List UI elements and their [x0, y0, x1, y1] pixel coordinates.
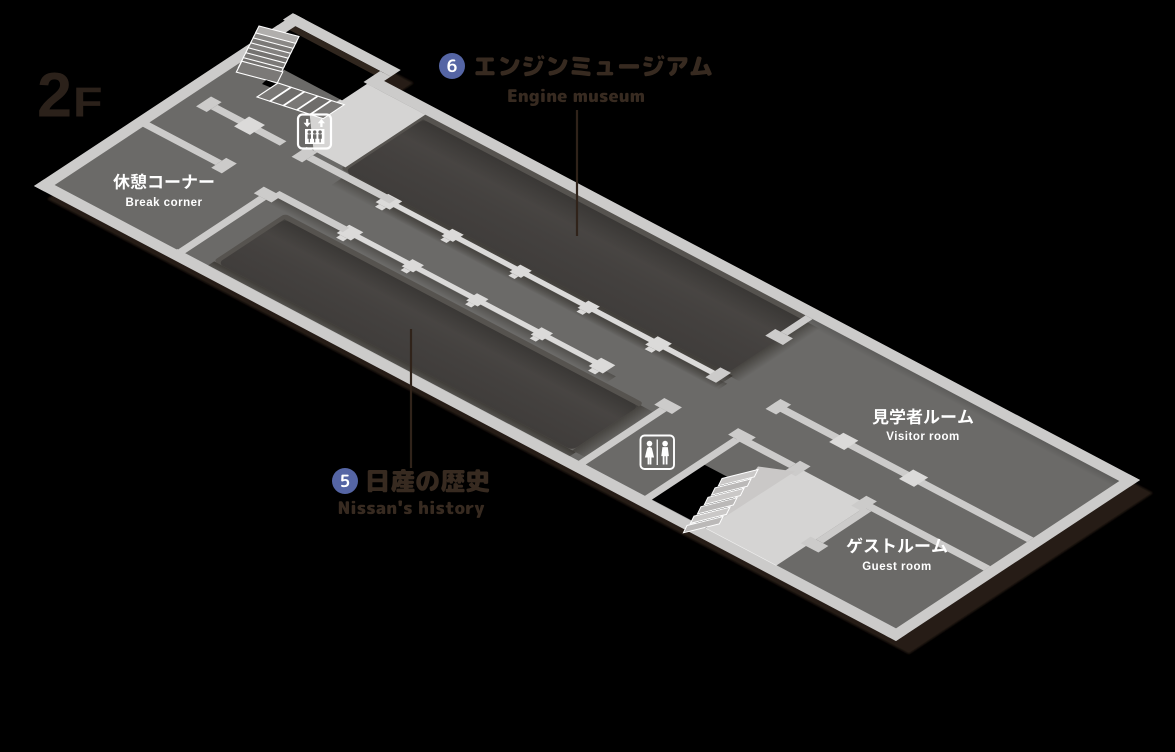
svg-text:Visitor room: Visitor room	[886, 431, 960, 443]
svg-text:Guest room: Guest room	[862, 561, 932, 573]
svg-text:Break corner: Break corner	[126, 197, 203, 209]
